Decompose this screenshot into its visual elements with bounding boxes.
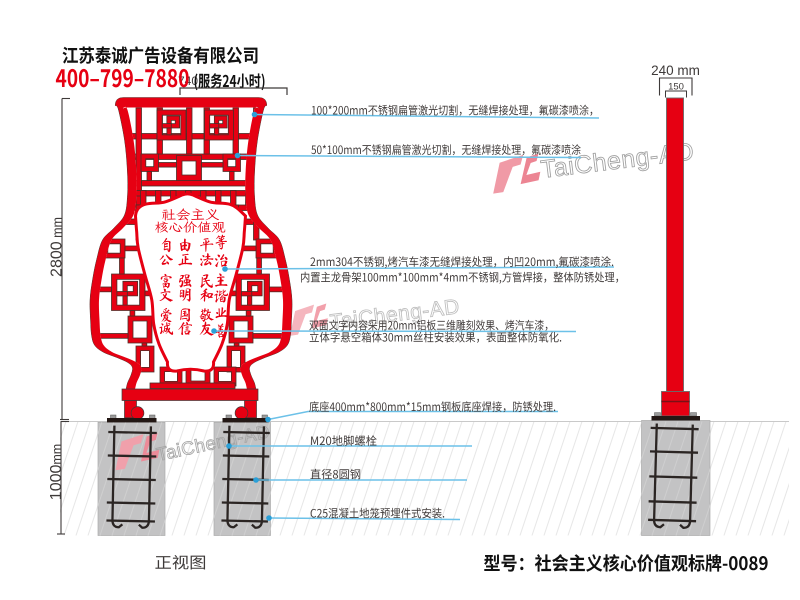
svg-text:2800 mm: 2800 mm	[49, 217, 66, 277]
svg-text:TaiCheng-AD: TaiCheng-AD	[329, 295, 461, 334]
svg-text:1000mm: 1000mm	[48, 444, 65, 500]
svg-text:240 mm: 240 mm	[651, 63, 700, 78]
